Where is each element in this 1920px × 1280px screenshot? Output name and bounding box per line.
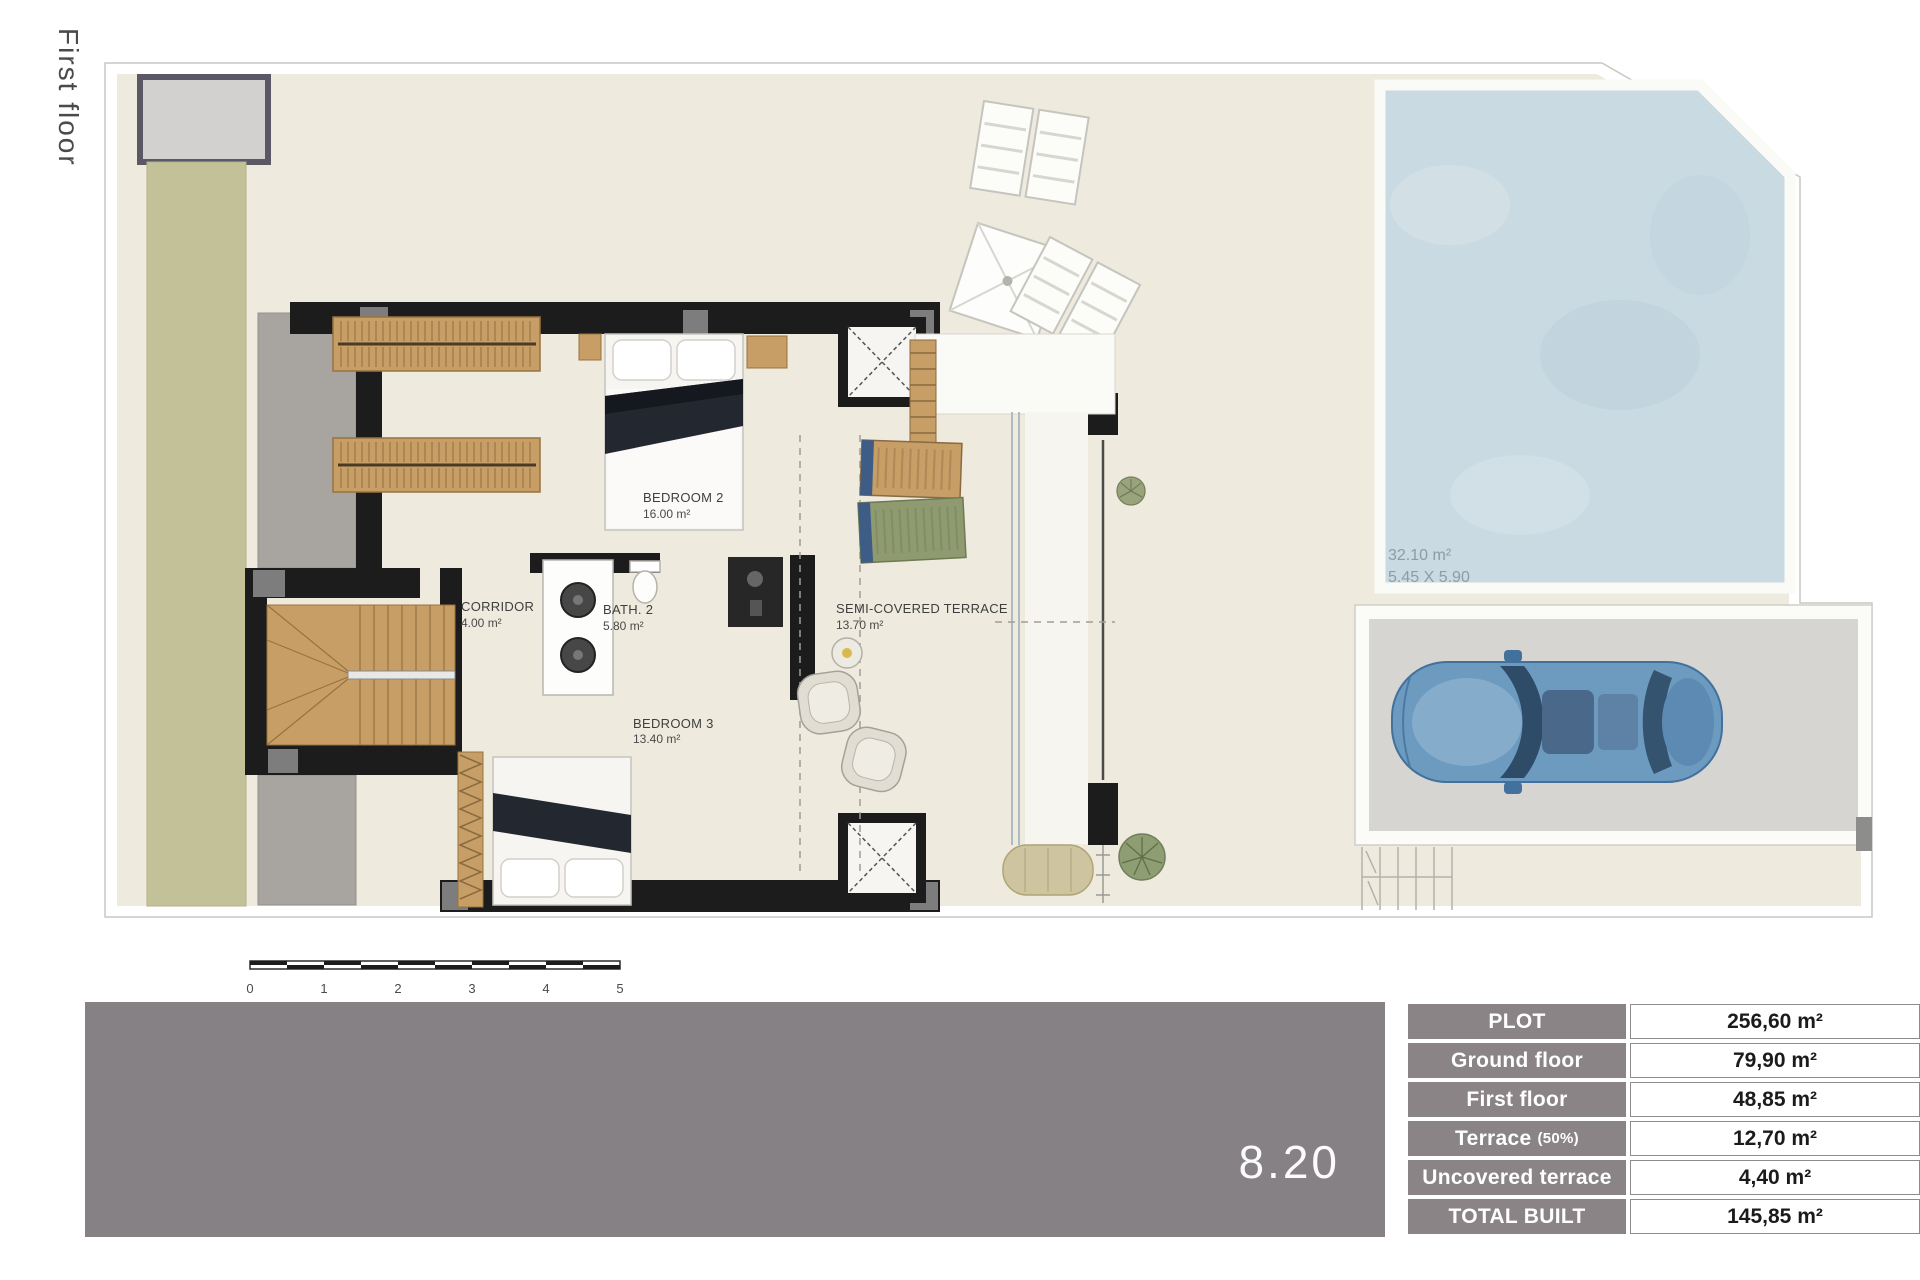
bed-icon: [493, 757, 631, 905]
room-area-bedroom2: 16.00 m²: [643, 507, 690, 521]
room-label-bedroom2: BEDROOM 2: [643, 490, 724, 505]
row-value: 48,85 m²: [1630, 1082, 1920, 1117]
terrace-roof-slab: [915, 334, 1115, 414]
table-row: Uncovered terrace 4,40 m²: [1408, 1160, 1920, 1195]
plant-icon: [1119, 834, 1165, 880]
scale-label-2: 2: [394, 981, 401, 996]
staircase: [267, 605, 455, 745]
row-value: 256,60 m²: [1630, 1004, 1920, 1039]
room-label-corridor: CORRIDOR: [461, 599, 534, 614]
scale-bar: 0 1 2 3 4 5: [246, 961, 623, 996]
row-label: Ground floor: [1408, 1043, 1626, 1078]
terrace-lounger-icon: [860, 440, 962, 498]
row-label: TOTAL BUILT: [1408, 1199, 1626, 1234]
scale-label-3: 3: [468, 981, 475, 996]
row-value: 12,70 m²: [1630, 1121, 1920, 1156]
swimming-pool: 32.10 m² 5.45 X 5.90: [1380, 85, 1790, 588]
scale-label-1: 1: [320, 981, 327, 996]
row-label: Terrace (50%): [1408, 1121, 1626, 1156]
row-value: 79,90 m²: [1630, 1043, 1920, 1078]
gravel-patch-bottom: [258, 775, 356, 905]
entry-step: [1856, 817, 1872, 851]
row-label: Uncovered terrace: [1408, 1160, 1626, 1195]
floor-plan-drawing: 32.10 m² 5.45 X 5.90: [100, 55, 1900, 1005]
area-summary-table: PLOT 256,60 m² Ground floor 79,90 m² Fir…: [1408, 1004, 1920, 1238]
floor-plan: 32.10 m² 5.45 X 5.90: [100, 55, 1900, 1005]
room-label-bath2: BATH. 2: [603, 602, 653, 617]
closet-icon: [333, 438, 540, 492]
scale-label-0: 0: [246, 981, 253, 996]
room-area-bath2: 5.80 m²: [603, 619, 644, 633]
table-row: Terrace (50%) 12,70 m²: [1408, 1121, 1920, 1156]
table-row: First floor 48,85 m²: [1408, 1082, 1920, 1117]
room-label-terrace: SEMI-COVERED TERRACE: [836, 601, 1008, 616]
row-label-text: Terrace: [1455, 1127, 1531, 1151]
table-row: PLOT 256,60 m²: [1408, 1004, 1920, 1039]
plan-number: 8.20: [1238, 1135, 1340, 1189]
skylight-box: [140, 77, 268, 162]
room-area-terrace: 13.70 m²: [836, 618, 883, 632]
scale-label-4: 4: [542, 981, 549, 996]
car-icon: [1392, 650, 1722, 794]
terrace-walkway: [1025, 412, 1088, 844]
row-label: First floor: [1408, 1082, 1626, 1117]
room-area-corridor: 4.00 m²: [461, 616, 502, 630]
row-label-suffix: (50%): [1537, 1130, 1579, 1147]
vanity-icon: [728, 557, 783, 627]
closet-icon: [333, 317, 540, 371]
pool-area-label: 32.10 m²: [1388, 547, 1452, 564]
table-row: Ground floor 79,90 m²: [1408, 1043, 1920, 1078]
scale-label-5: 5: [616, 981, 623, 996]
row-label: PLOT: [1408, 1004, 1626, 1039]
row-value: 145,85 m²: [1630, 1199, 1920, 1234]
plant-icon: [1117, 477, 1145, 505]
page-title: First floor: [52, 28, 84, 167]
footer-bar: 8.20: [85, 1002, 1385, 1237]
terrace-lounger-icon: [858, 498, 966, 563]
green-border-strip: [147, 162, 246, 906]
table-row: TOTAL BUILT 145,85 m²: [1408, 1199, 1920, 1234]
side-table-icon: [832, 638, 862, 668]
pouf-icon: [1003, 845, 1093, 895]
pool-dimensions-label: 5.45 X 5.90: [1388, 569, 1470, 586]
folding-door-icon: [458, 752, 483, 907]
elevator-shaft: [838, 813, 926, 903]
row-value: 4,40 m²: [1630, 1160, 1920, 1195]
room-area-bedroom3: 13.40 m²: [633, 732, 680, 746]
room-label-bedroom3: BEDROOM 3: [633, 716, 714, 731]
armchair-icon: [795, 669, 863, 737]
